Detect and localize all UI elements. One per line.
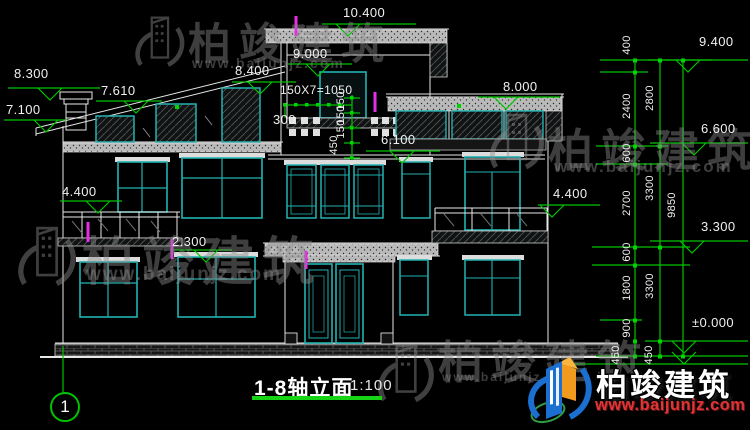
dim-chain-mid-3300a: 3300 xyxy=(644,166,656,210)
left-wing xyxy=(36,66,285,344)
level-label-8400: 8.400 xyxy=(235,63,270,78)
level-label-6600: 6.600 xyxy=(701,121,736,136)
level-label-10400: 10.400 xyxy=(343,5,385,20)
level-label-2300: 2.300 xyxy=(172,234,207,249)
level-label-0000: ±0.000 xyxy=(692,315,734,330)
dim-chain-inner-900: 900 xyxy=(621,306,633,350)
dim-chain-inner-1800: 1800 xyxy=(621,266,633,310)
dim-label-step-width: 300 xyxy=(273,112,296,127)
level-label-4400-right: 4.400 xyxy=(553,186,588,201)
dim-overall-9850: 9850 xyxy=(666,183,678,227)
level-label-8000: 8.000 xyxy=(503,79,538,94)
level-label-9000: 9.000 xyxy=(293,46,328,61)
drawing-scale: 1:100 xyxy=(350,377,393,394)
watermark-logo-icon xyxy=(131,14,187,72)
brand-logo-url: www.baijunjz.com xyxy=(595,396,745,415)
watermark-logo-icon xyxy=(486,110,546,176)
dim-label-riser-total: 450 xyxy=(328,123,340,167)
dim-chain-mid-2800: 2800 xyxy=(644,76,656,120)
level-label-8300: 8.300 xyxy=(14,66,49,81)
dim-chain-inner-600a: 600 xyxy=(621,131,633,175)
title-underline xyxy=(252,396,382,400)
dim-chain-inner-2700: 2700 xyxy=(621,181,633,225)
level-label-9400: 9.400 xyxy=(699,34,734,49)
dim-chain-inner-2400: 2400 xyxy=(621,84,633,128)
watermark-logo-icon xyxy=(374,328,436,422)
level-label-3300: 3.300 xyxy=(701,219,736,234)
watermark-logo-icon xyxy=(14,222,78,294)
central-tower xyxy=(263,29,545,344)
brand-logo-icon xyxy=(526,354,594,426)
dim-chain-mid-3300b: 3300 xyxy=(644,264,656,308)
level-label-6100: 6.100 xyxy=(381,132,416,147)
level-label-7100: 7.100 xyxy=(6,102,41,117)
axis-bubble-1: 1 xyxy=(50,392,80,422)
watermark-url-left: www.baijunjz.com xyxy=(86,264,282,286)
level-label-7610: 7.610 xyxy=(101,83,136,98)
dim-chain-inner-400: 400 xyxy=(621,23,633,67)
level-label-4400-left: 4.400 xyxy=(62,184,97,199)
cad-elevation-canvas: 柏竣建筑 www.baijunjz.com 柏竣建筑 www.baijunjz.… xyxy=(0,0,750,430)
